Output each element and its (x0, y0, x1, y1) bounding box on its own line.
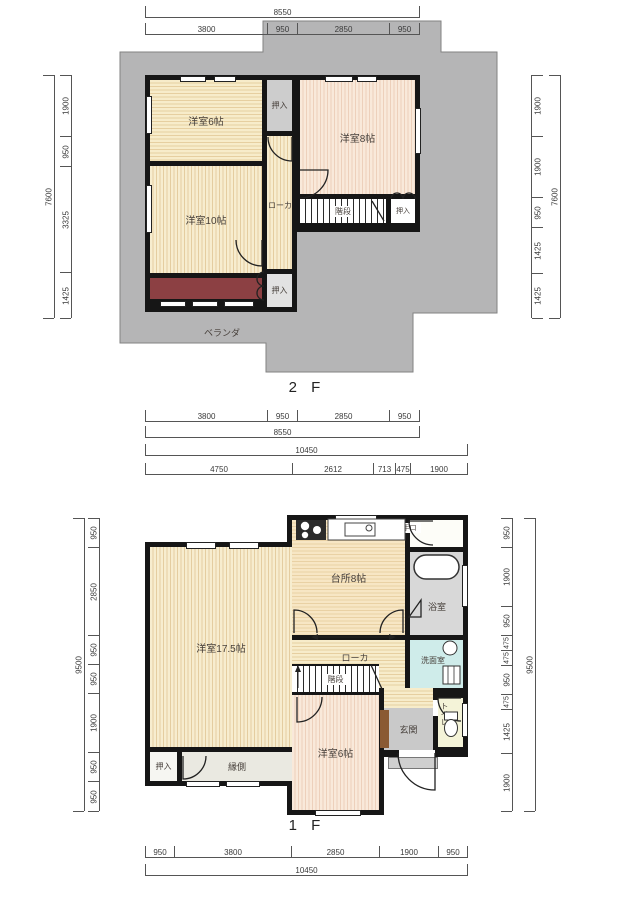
dim-label: 950 (89, 760, 98, 773)
dim-1f-top-total: 10450 (145, 444, 468, 456)
room-label: 洋室10帖 (185, 212, 226, 227)
dim-label: 950 (61, 145, 70, 158)
dim-label: 1900 (61, 97, 70, 115)
room-1f-entrance: 玄関 (384, 708, 433, 750)
dim-label: 950 (146, 848, 174, 857)
room-1f-bath (410, 552, 463, 635)
window (186, 542, 216, 549)
dim-label: 1900 (502, 774, 511, 792)
dim-2f-left-total: 7600 (43, 75, 55, 318)
window (146, 185, 152, 233)
dim-2f-left-segments: 1900 950 3325 1425 (60, 75, 72, 318)
dim-label: 1900 (89, 714, 98, 732)
dim-label: 7600 (550, 188, 559, 206)
window (315, 810, 361, 816)
dim-2f-bottom-total: 8550 (145, 426, 420, 438)
entrance-porch-step (388, 757, 438, 769)
dim-2f-top-segments: 3800 950 2850 950 (145, 23, 420, 35)
stairs-2f: 階段 (300, 199, 386, 223)
floor-label-1f: 1 F (272, 817, 342, 834)
dim-1f-left-total: 9500 (73, 518, 85, 811)
dim-1f-top-segments: 4750 2612 713 475 1900 (145, 463, 468, 475)
window (180, 76, 206, 82)
dim-label: 475 (503, 637, 510, 649)
room-2f-yoshitsu10: 洋室10帖 (150, 166, 262, 273)
room-label: 洋室6帖 (188, 113, 224, 128)
closet-2f-stairs: 押入 (391, 199, 415, 223)
dim-label: 950 (390, 412, 419, 421)
bath-label: 浴室 (417, 600, 457, 613)
corridor-1f-branch (384, 688, 433, 708)
window (224, 301, 254, 307)
dim-label: 2850 (298, 25, 389, 34)
dim-1f-right-segments: 950 1900 950 475 475 950 475 1425 1900 (501, 518, 513, 811)
room-label: 台所8帖 (331, 570, 367, 585)
dim-label: 475 (396, 465, 410, 474)
dim-label: 950 (89, 643, 98, 656)
dim-label: 950 (268, 412, 297, 421)
washroom-label: 洗面室 (411, 655, 455, 666)
dim-label: 1900 (533, 97, 542, 115)
window (415, 108, 421, 154)
backdoor-label: 勝手口 (391, 523, 421, 533)
window (325, 76, 353, 82)
window (357, 76, 377, 82)
dim-label: 1425 (533, 287, 542, 305)
dim-label: 950 (439, 848, 467, 857)
closet-1f: 押入 (150, 752, 177, 781)
dim-label: 950 (390, 25, 419, 34)
dim-label: 8550 (146, 8, 419, 17)
room-1f-living: 洋室17.5帖 (150, 547, 292, 747)
dim-2f-right-segments: 1900 1900 950 1425 1425 (531, 75, 543, 318)
dim-1f-right-total: 9500 (524, 518, 536, 811)
room-1f-yoshitsu6: 洋室6帖 (292, 695, 379, 810)
shoe-cabinet-1f (380, 710, 389, 748)
dim-label: 950 (89, 672, 98, 685)
dim-label: 950 (268, 25, 297, 34)
dim-label: 10450 (146, 446, 467, 455)
dim-label: 10450 (146, 866, 467, 875)
dim-label: 7600 (44, 188, 53, 206)
closet-2f-bottom: 押入 (267, 274, 292, 307)
floor-plan-page: 洋室6帖 押入 洋室8帖 階段 押入 洋室10帖 押入 ローカ ベランダ 洋室1… (0, 0, 640, 908)
dim-label: 8550 (146, 428, 419, 437)
dim-label: 3800 (175, 848, 291, 857)
dim-2f-bottom-segments: 3800 950 2850 950 (145, 410, 420, 422)
dim-label: 9500 (74, 656, 83, 674)
window (192, 301, 218, 307)
stairs-label: 階段 (333, 206, 353, 217)
dim-2f-right-total: 7600 (549, 75, 561, 318)
dim-label: 713 (374, 465, 395, 474)
room-label: 洋室17.5帖 (196, 640, 245, 655)
dim-label: 1900 (533, 158, 542, 176)
stairs-1f: 階段 (292, 664, 379, 692)
dim-1f-bottom-segments: 950 3800 2850 1900 950 (145, 846, 468, 858)
dim-label: 950 (502, 673, 511, 686)
closet-label: 押入 (396, 206, 410, 216)
dim-label: 475 (503, 696, 510, 708)
closet-2f-top: 押入 (267, 80, 292, 131)
closet-label: 押入 (272, 100, 288, 111)
dim-label: 1425 (502, 723, 511, 741)
floor-label-2f: 2 F (272, 379, 342, 396)
window (462, 565, 468, 607)
entrance-label: 玄関 (399, 723, 417, 736)
stairs-label: 階段 (326, 674, 346, 685)
window (229, 542, 259, 549)
door-gap-entrance (399, 750, 435, 757)
window (186, 781, 220, 787)
dim-label: 3325 (61, 211, 70, 229)
room-2f-yoshitsu8: 洋室8帖 (300, 80, 415, 194)
dim-label: 950 (89, 790, 98, 803)
dim-label: 1425 (61, 287, 70, 305)
dim-label: 950 (89, 526, 98, 539)
room-2f-yoshitsu6: 洋室6帖 (150, 80, 262, 161)
engawa-label: 縁側 (228, 760, 246, 773)
door-gap-toilet (433, 700, 438, 716)
dim-label: 475 (503, 652, 510, 664)
window (335, 515, 377, 521)
corridor-2f-label: ローカ (262, 200, 298, 211)
window (160, 301, 186, 307)
engawa-1f: 縁側 (182, 752, 292, 781)
dim-2f-top-total: 8550 (145, 6, 420, 18)
corridor-1f-label: ローカ (330, 651, 380, 664)
room-label: 洋室6帖 (318, 745, 354, 760)
dim-label: 3800 (146, 412, 267, 421)
dim-label: 2850 (292, 848, 379, 857)
dim-label: 4750 (146, 465, 292, 474)
dim-label: 1900 (411, 465, 467, 474)
dim-label: 2612 (293, 465, 373, 474)
toilet-label: トイレ (439, 702, 450, 726)
window (214, 76, 236, 82)
closet-label: 押入 (156, 761, 172, 772)
veranda-2f-label: ベランダ (192, 326, 252, 339)
dim-label: 3800 (146, 25, 267, 34)
dim-label: 950 (502, 614, 511, 627)
closet-label: 押入 (272, 285, 288, 296)
window (462, 703, 468, 737)
dim-label: 950 (533, 206, 542, 219)
dim-label: 2850 (89, 583, 98, 601)
dim-label: 1900 (502, 568, 511, 586)
room-1f-kitchen: 台所8帖 (292, 520, 405, 635)
dim-label: 1425 (533, 242, 542, 260)
room-label: 洋室8帖 (340, 130, 376, 145)
dim-1f-left-segments: 950 2850 950 950 1900 950 950 (88, 518, 100, 811)
dim-label: 9500 (525, 656, 534, 674)
window (226, 781, 260, 787)
dim-1f-bottom-total: 10450 (145, 864, 468, 876)
veranda-2f-strip (150, 278, 262, 299)
dim-label: 2850 (298, 412, 389, 421)
window (146, 96, 152, 134)
dim-label: 950 (502, 526, 511, 539)
dim-label: 1900 (380, 848, 438, 857)
